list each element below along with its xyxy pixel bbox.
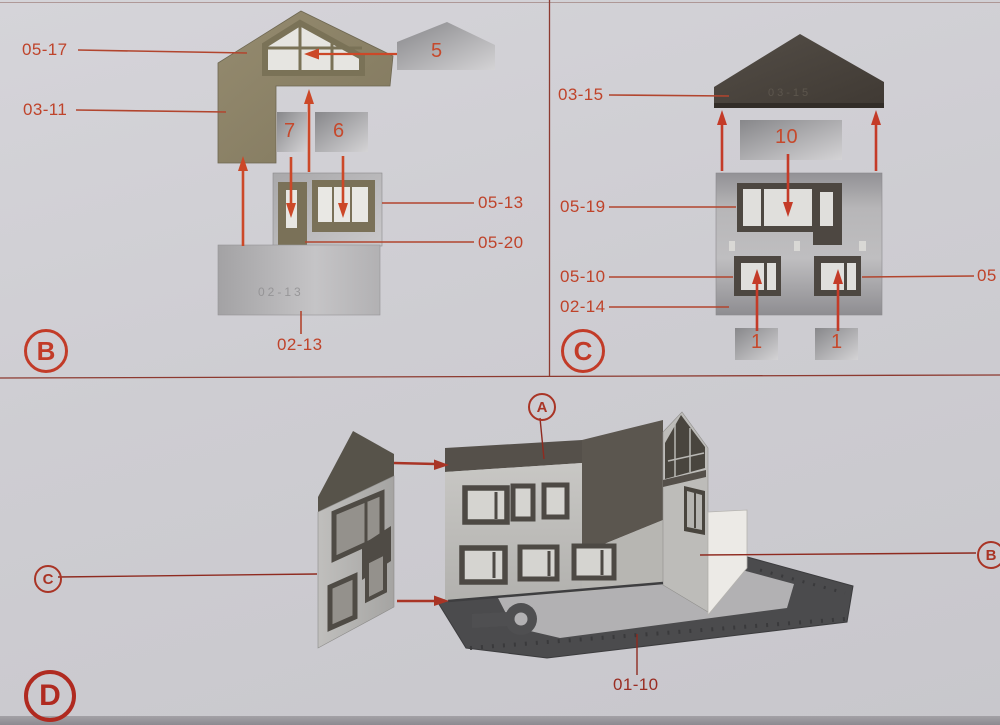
b-piece-number-window: 6 — [333, 121, 345, 141]
c-label-upper-window: 05-19 — [560, 198, 605, 215]
b-label-door-frame: 05-20 — [478, 234, 523, 251]
b-embossed-base-text: 02-13 — [258, 286, 304, 298]
b-label-base-strip: 02-13 — [277, 336, 322, 353]
b-section-badge: B — [24, 329, 68, 373]
c-section-badge: C — [561, 329, 605, 373]
c-embossed-roof-text: 03-15 — [768, 88, 811, 99]
c-wall-notch-1 — [729, 241, 735, 251]
d-callout-right: B — [977, 541, 1000, 569]
d-facade-window-bottom-1 — [462, 548, 505, 582]
c-upper-window-pane-3 — [820, 192, 833, 226]
d-base-keyhole-stem — [472, 612, 508, 628]
c-leader-roof — [609, 95, 729, 96]
d-facade-window-top-2 — [513, 486, 533, 519]
b-piece-number-door: 7 — [284, 121, 296, 141]
c-piece-number-window-left: 1 — [751, 332, 763, 352]
c-piece-number-wall: 10 — [775, 127, 798, 147]
diagram-canvas — [0, 0, 1000, 725]
c-upper-window-pane-1 — [743, 189, 761, 226]
c-label-wall: 02-14 — [560, 298, 605, 315]
c-label-lower-window: 05-10 — [560, 268, 605, 285]
d-facade-window-top-3 — [544, 485, 567, 517]
d-leader-callout-c — [58, 574, 317, 577]
d-callout-c: C — [34, 565, 62, 593]
d-left-wall-window-3 — [330, 576, 355, 628]
c-arrowhead-wall-to-roof-left — [717, 110, 727, 125]
c-lower-window-right-pane-1 — [821, 263, 844, 290]
c-label-right-edge: 05 — [977, 267, 997, 284]
c-lower-window-left-pane-1 — [741, 263, 764, 290]
d-facade-window-bottom-2 — [520, 547, 557, 579]
b-triple-window-pane-1 — [318, 187, 332, 222]
b-piece-number-roof: 5 — [431, 41, 443, 61]
d-label-base-plate: 01-10 — [613, 676, 658, 693]
c-roof-piece-edge — [714, 103, 884, 108]
b-base-strip-piece — [218, 245, 380, 315]
c-wall-notch-2 — [794, 241, 800, 251]
instruction-sheet: 05-17 03-11 5 7 6 05-13 05-20 02-13 02-1… — [0, 0, 1000, 725]
c-piece-number-window-right: 1 — [831, 332, 843, 352]
b-leader-gable-wall — [76, 110, 226, 112]
c-arrowhead-wall-to-roof-right — [871, 110, 881, 125]
d-section-badge: D — [24, 670, 76, 722]
c-lower-window-right-pane-2 — [847, 263, 856, 290]
b-arrowhead-wall-to-gable — [304, 89, 314, 104]
b-roof-print-piece — [397, 22, 495, 70]
d-facade-window-bottom-3 — [574, 546, 614, 578]
b-label-window-frame: 05-13 — [478, 194, 523, 211]
c-lower-window-left-pane-2 — [767, 263, 776, 290]
page-top-edge — [0, 2, 1000, 3]
c-wall-notch-3 — [859, 241, 866, 251]
b-leader-gable-window — [78, 50, 247, 53]
d-base-keyhole-hole — [515, 613, 528, 626]
d-arrow-left-wall-top — [394, 463, 436, 464]
b-label-gable-wall: 03-11 — [23, 101, 67, 118]
d-facade-window-top-1 — [465, 488, 507, 522]
d-left-wall-window-4 — [367, 553, 385, 600]
b-triple-window-pane-3 — [352, 187, 368, 222]
page-bottom-edge — [0, 716, 1000, 725]
c-label-roof: 03-15 — [558, 86, 603, 103]
c-leader-right-edge — [862, 276, 974, 277]
b-label-gable-window: 05-17 — [22, 41, 67, 58]
horizontal-divider — [0, 375, 1000, 378]
d-callout-a: A — [528, 393, 556, 421]
